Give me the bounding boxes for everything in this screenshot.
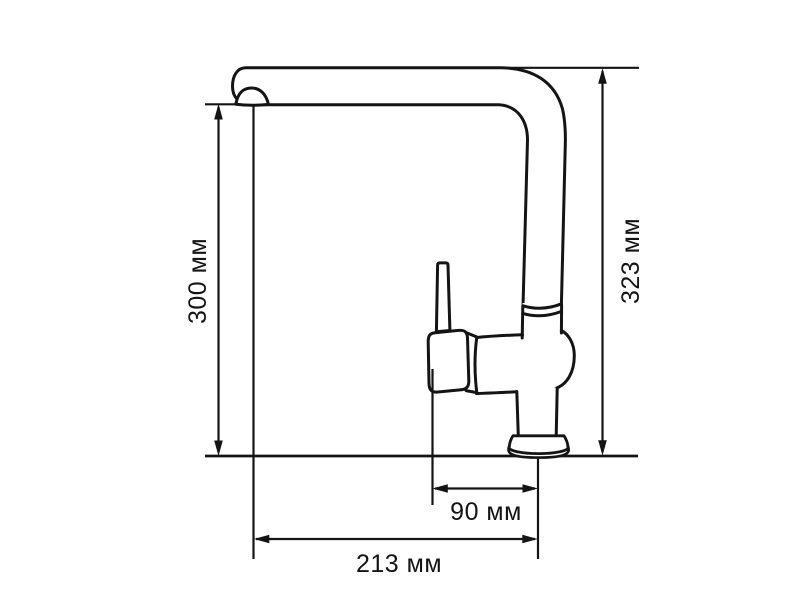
extension-lines: [205, 68, 639, 456]
faucet-handle-lever: [436, 263, 450, 332]
dim-label-spout-height: 300 мм: [184, 221, 212, 341]
arrow-right-icon: [522, 535, 538, 543]
arrow-up-icon: [214, 104, 223, 120]
faucet-body-fill: [477, 330, 575, 394]
dim-300: [214, 104, 223, 456]
faucet-base-flange: [509, 436, 568, 454]
faucet-spout: [233, 68, 566, 307]
arrow-up-icon: [598, 68, 607, 84]
faucet-base-pipe: [517, 388, 558, 438]
dim-label-base-offset: 90 мм: [436, 498, 536, 526]
arrow-left-icon: [432, 484, 448, 492]
arrow-down-icon: [598, 440, 607, 455]
dim-213: [254, 107, 539, 560]
dim-label-total-height: 323 мм: [617, 201, 645, 321]
dim-323: [598, 68, 607, 455]
arrow-left-icon: [254, 535, 269, 543]
drawing-canvas: [0, 0, 800, 600]
dim-label-spout-reach: 213 мм: [339, 550, 459, 578]
arrow-right-icon: [523, 484, 539, 492]
arrow-down-icon: [214, 441, 223, 457]
faucet-dimension-drawing: 300 мм 323 мм 90 мм 213 мм: [0, 0, 800, 600]
faucet-handle-bell: [428, 330, 469, 392]
